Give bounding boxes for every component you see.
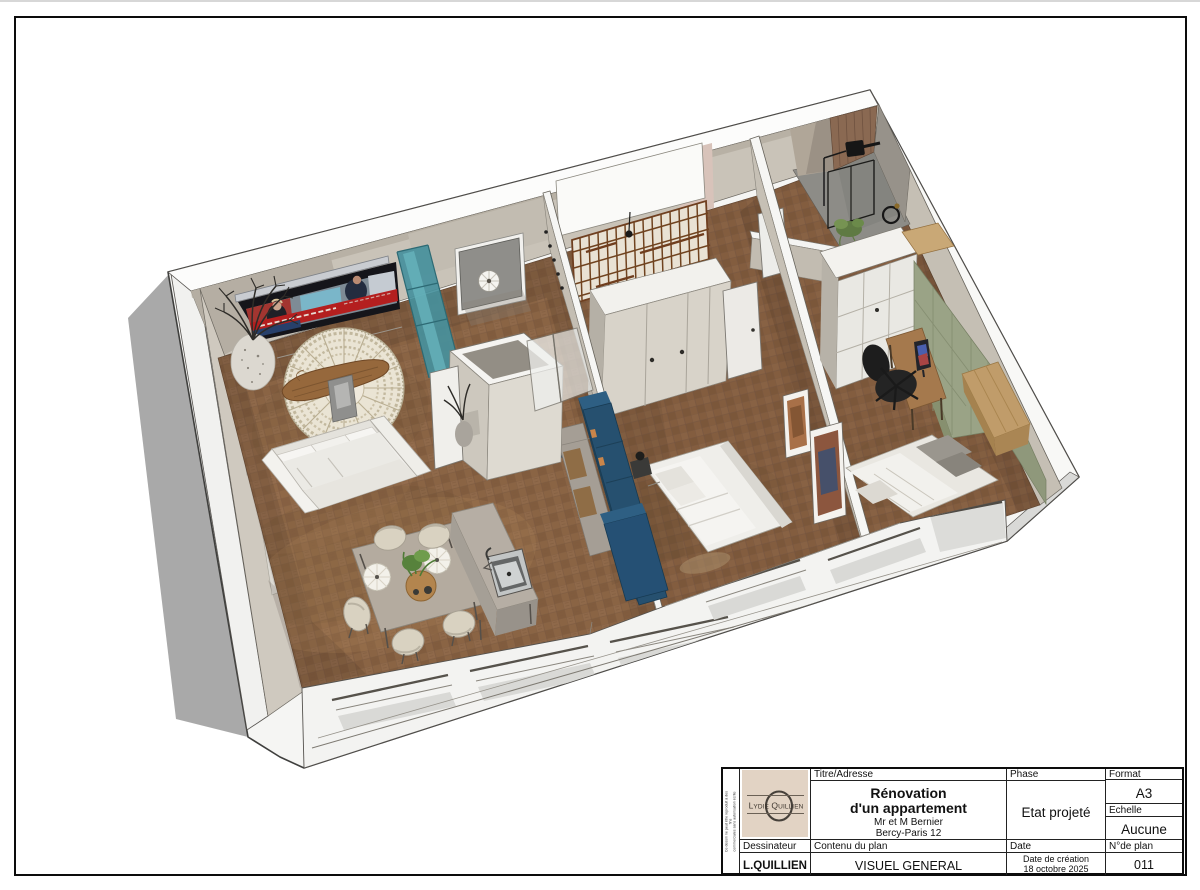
svg-text:LYDIE QUILLIEN: LYDIE QUILLIEN: [749, 801, 804, 811]
